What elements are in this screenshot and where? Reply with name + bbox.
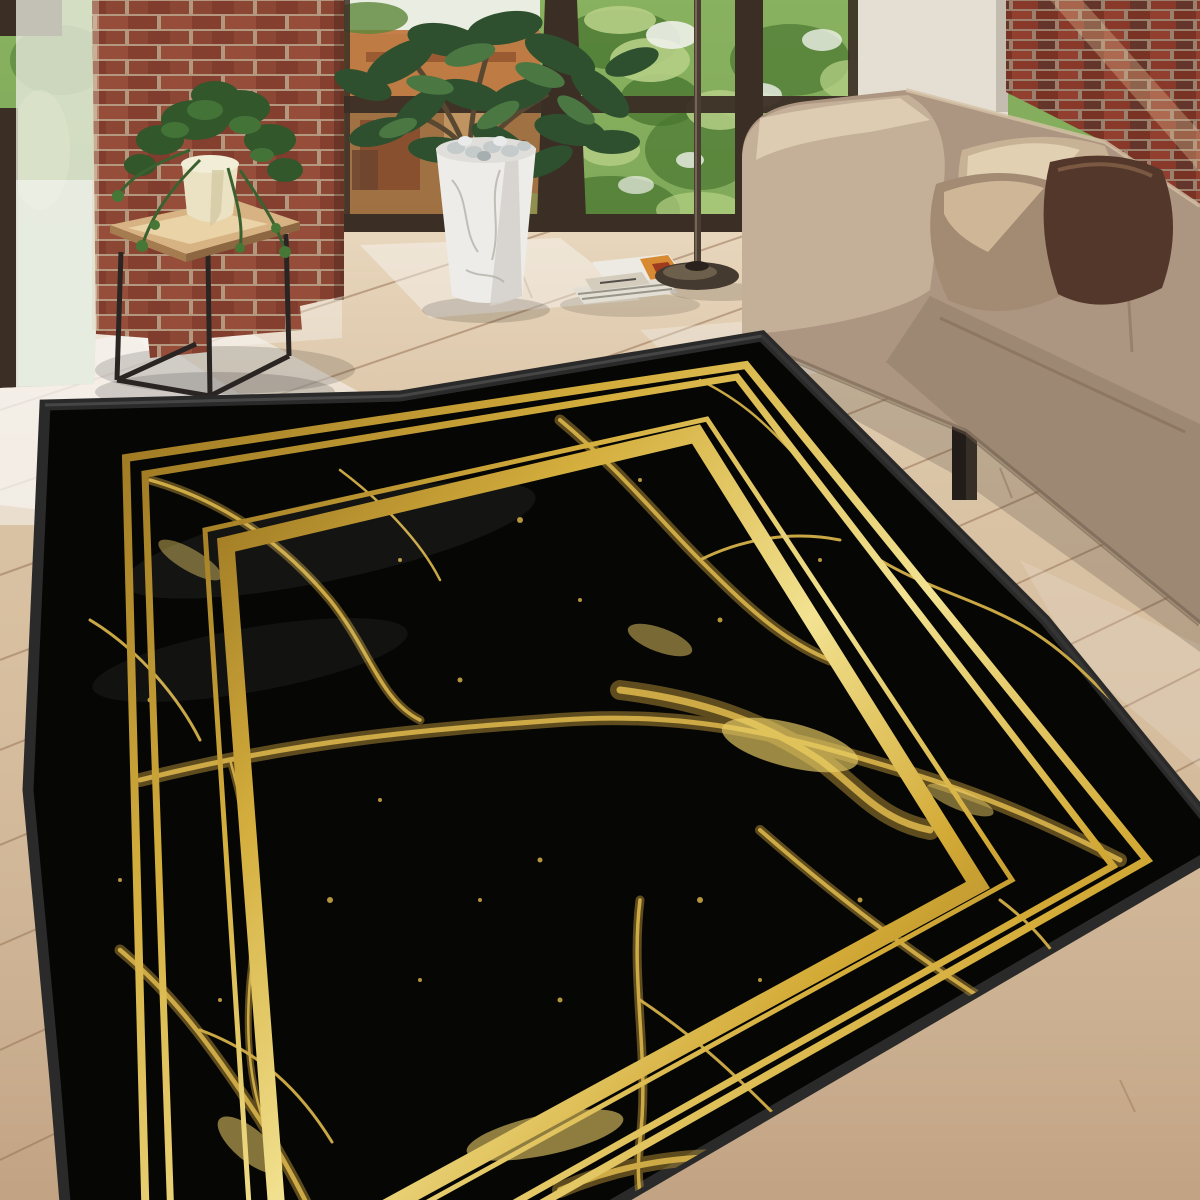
rug-product-photo bbox=[0, 0, 1200, 1200]
vignette bbox=[0, 0, 1200, 1200]
scene-canvas bbox=[0, 0, 1200, 1200]
